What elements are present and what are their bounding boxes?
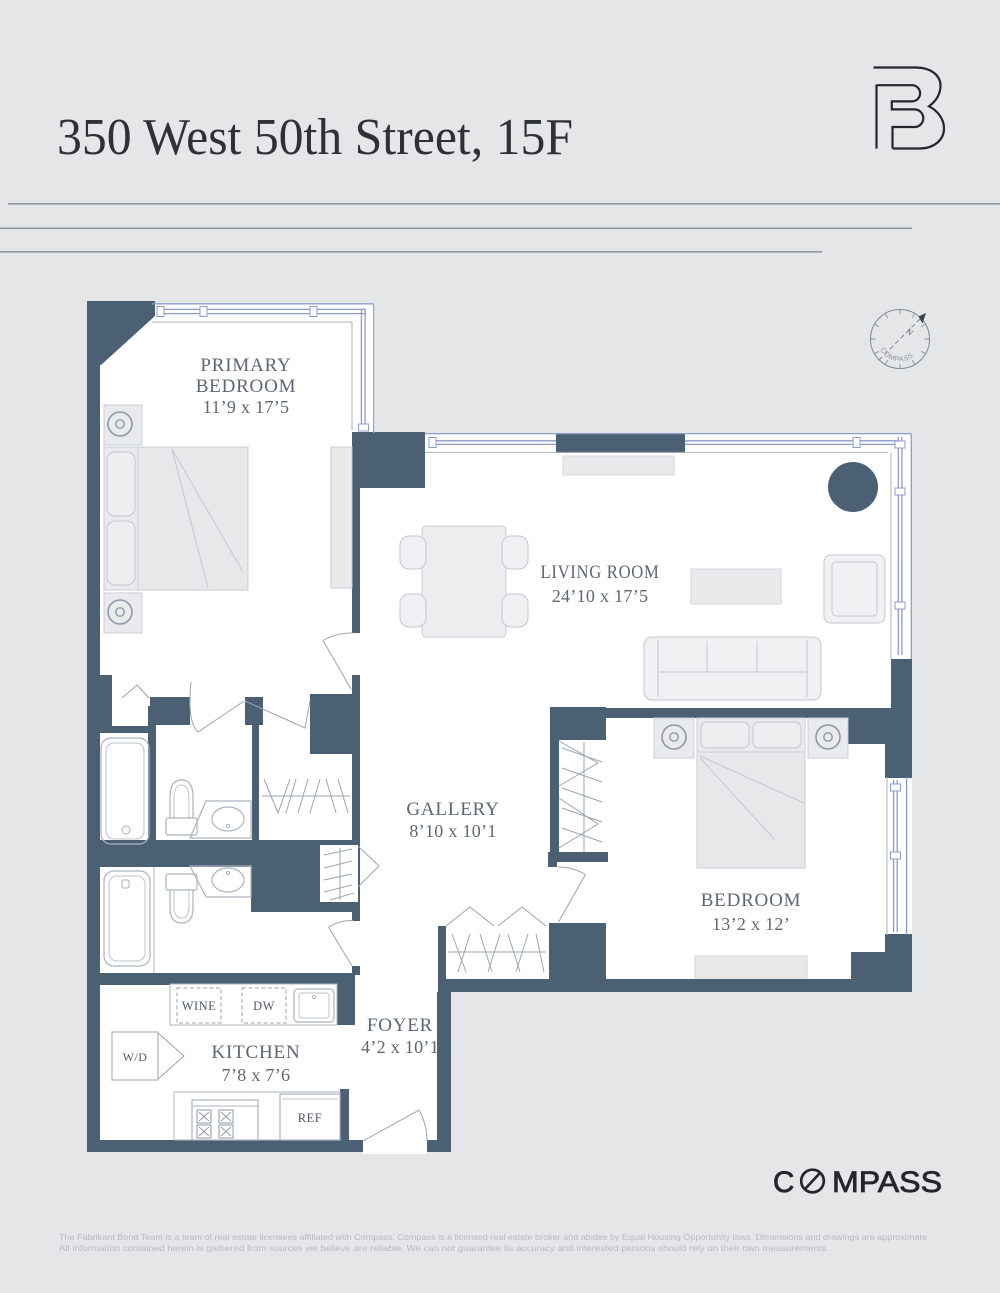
svg-text:WINE: WINE (182, 999, 217, 1013)
svg-text:REF: REF (298, 1111, 322, 1125)
svg-text:W/D: W/D (123, 1050, 148, 1064)
svg-text:LIVING ROOM: LIVING ROOM (541, 562, 660, 583)
svg-text:All information contained here: All information contained herein is gath… (59, 1243, 829, 1253)
svg-text:BEDROOM: BEDROOM (196, 376, 297, 397)
svg-text:GALLERY: GALLERY (406, 799, 499, 820)
svg-text:13’2 x 12’: 13’2 x 12’ (712, 914, 790, 934)
svg-text:4’2 x 10’1: 4’2 x 10’1 (361, 1037, 439, 1057)
svg-text:MPASS: MPASS (832, 1166, 942, 1199)
svg-text:DW: DW (253, 999, 275, 1013)
svg-text:FOYER: FOYER (367, 1015, 433, 1036)
svg-text:7’8 x 7’6: 7’8 x 7’6 (222, 1065, 291, 1085)
svg-text:11’9 x 17’5: 11’9 x 17’5 (203, 397, 290, 417)
svg-text:PRIMARY: PRIMARY (200, 355, 291, 376)
svg-text:8’10 x 10’1: 8’10 x 10’1 (409, 821, 496, 841)
svg-text:The Fabrikant Bond Team is a t: The Fabrikant Bond Team is a team of rea… (59, 1232, 927, 1242)
svg-text:24’10 x 17’5: 24’10 x 17’5 (552, 586, 649, 606)
svg-text:KITCHEN: KITCHEN (212, 1042, 301, 1063)
svg-text:C: C (773, 1166, 794, 1199)
svg-text:BEDROOM: BEDROOM (701, 890, 802, 911)
svg-text:350 West 50th Street, 15F: 350 West 50th Street, 15F (57, 109, 573, 166)
